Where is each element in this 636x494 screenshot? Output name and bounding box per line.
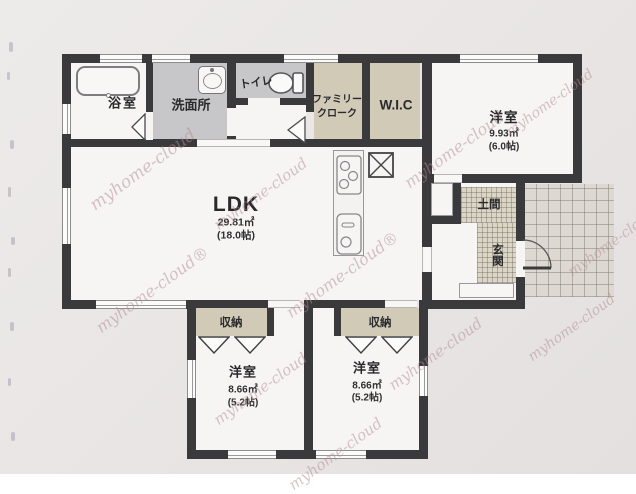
wall [334, 300, 341, 336]
bedroom-sw-label: 洋室 [229, 362, 257, 381]
wall [573, 54, 582, 183]
closet-sw-label: 収納 [220, 314, 243, 330]
paper-smudge [7, 72, 10, 80]
window [284, 54, 338, 63]
wall [227, 54, 236, 108]
window [316, 450, 366, 459]
paper-smudge [8, 378, 11, 386]
wall [362, 54, 370, 147]
refrigerator-space-icon [368, 152, 394, 178]
window [419, 366, 428, 396]
floor-plan: 浴室 洗面所 トイレ ファミリー クローク W.I.C 洋室 9.93㎡ (6.… [0, 0, 636, 474]
family-closet-label-line1: ファミリー [312, 91, 362, 106]
closet-door-marker [345, 336, 377, 355]
window [187, 360, 196, 398]
window [62, 104, 71, 134]
wall [62, 54, 71, 309]
paper-smudge [11, 237, 15, 245]
sliding-door [422, 247, 432, 272]
ldk-label: LDK [213, 193, 259, 217]
genkan-label: 玄関 [489, 244, 505, 267]
bedroom-ne-label: 洋室 [490, 106, 519, 126]
door-opening [227, 108, 236, 136]
closet-door-marker [234, 336, 266, 355]
wic-label: W.I.C [380, 98, 413, 113]
closet-door-marker [198, 336, 230, 355]
sliding-door [434, 174, 462, 183]
toilet-icon [268, 69, 308, 97]
wall [146, 140, 153, 147]
door-swing-marker [287, 116, 306, 144]
door-opening [146, 112, 153, 140]
entry-door-arc-icon [514, 237, 558, 273]
wall [313, 300, 385, 308]
door-opening [248, 98, 280, 105]
bedroom-se-tatami: (5.2帖) [352, 389, 383, 404]
washbasin-tap-icon [210, 68, 214, 72]
wall [196, 300, 268, 308]
window [460, 54, 538, 63]
washbasin-bowl [203, 73, 222, 89]
door-swing-marker [131, 113, 146, 141]
paper-smudge [9, 42, 13, 52]
window [100, 54, 142, 63]
stove-icon [336, 155, 362, 195]
window [152, 54, 190, 63]
paper-smudge [8, 268, 11, 277]
paper-smudge [11, 432, 15, 441]
sliding-door [268, 300, 300, 308]
doma-label: 土間 [478, 196, 501, 212]
closet-se-label: 収納 [369, 314, 392, 330]
bedroom-sw-tatami: (5.2帖) [228, 394, 259, 409]
wall [516, 183, 525, 241]
window [96, 300, 186, 309]
bathroom-label: 浴室 [108, 93, 138, 112]
window [62, 188, 71, 244]
paper-smudge [10, 322, 14, 331]
wall [422, 272, 432, 309]
wall [422, 54, 432, 147]
wall [304, 300, 313, 459]
wall [424, 300, 525, 309]
bedroom-se-label: 洋室 [353, 358, 381, 377]
genkan-step [459, 283, 514, 298]
window [228, 450, 276, 459]
sliding-door [197, 139, 270, 147]
family-closet-label-line2: クローク [317, 105, 357, 120]
bathtub-icon [76, 66, 140, 96]
wall [236, 98, 248, 105]
wall [306, 140, 314, 147]
sliding-door [385, 300, 417, 308]
ldk-tatami: (18.0帖) [217, 228, 255, 243]
washbasin-icon [198, 66, 226, 94]
paper-smudge [10, 140, 14, 149]
wall [431, 216, 461, 224]
closet-door-marker [381, 336, 413, 355]
paper-smudge [8, 187, 11, 197]
shoe-cabinet [431, 183, 453, 216]
watermark: myhome-cloud [525, 291, 618, 365]
washroom-label: 洗面所 [171, 95, 210, 114]
bedroom-ne-tatami: (6.0帖) [489, 138, 520, 153]
kitchen-sink-icon [336, 213, 362, 255]
